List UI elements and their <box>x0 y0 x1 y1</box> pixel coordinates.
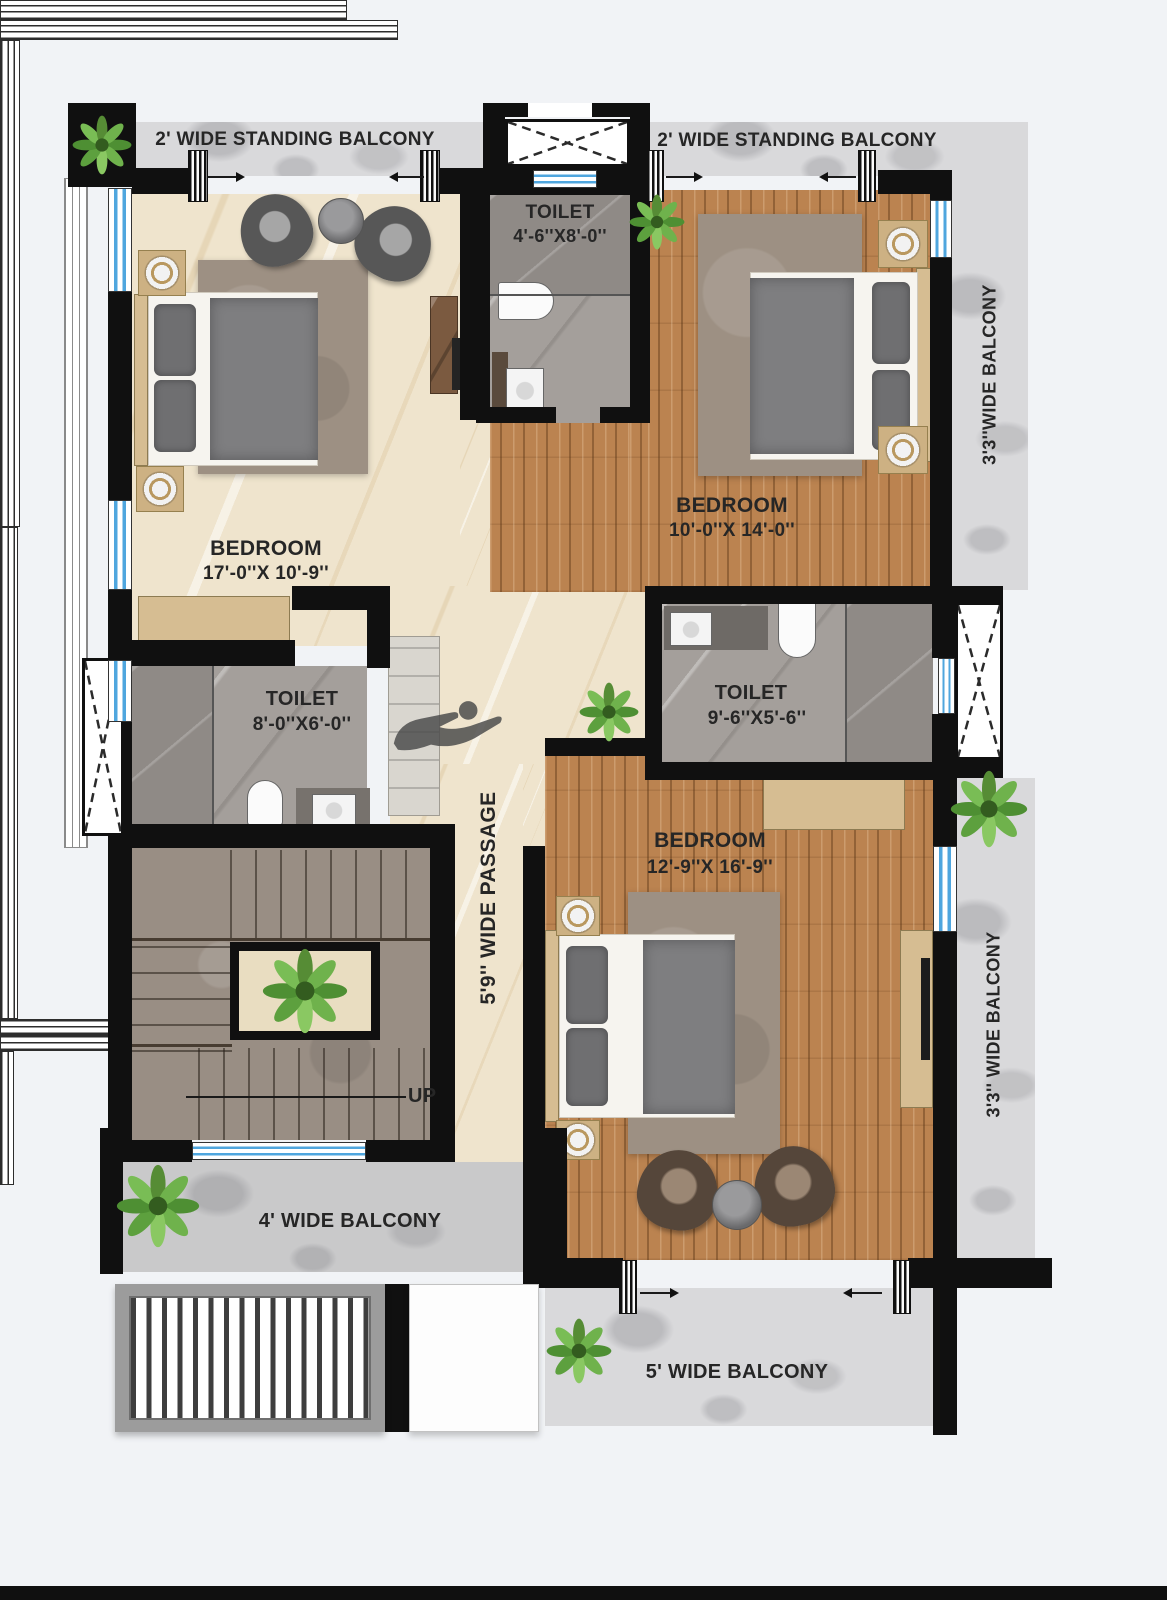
room-dims: 4'-6''X8'-0'' <box>480 226 640 247</box>
nightstand <box>138 250 186 296</box>
pillow <box>566 1028 608 1106</box>
sliding-door-leaf <box>858 150 876 202</box>
up-leader-line <box>186 1096 406 1098</box>
sliding-door-leaf <box>619 1260 637 1314</box>
shower-divider <box>845 604 847 764</box>
pillow <box>872 282 910 364</box>
floor-plan: 2' WIDE STANDING BALCONY 2' WIDE STANDIN… <box>0 0 1167 1600</box>
wall <box>483 103 528 117</box>
wall <box>108 292 132 500</box>
sink <box>670 612 712 646</box>
door-swing-arrow <box>236 172 245 182</box>
door-swing-arrow <box>208 176 236 178</box>
toilet-fixture <box>498 282 554 320</box>
bed-duvet <box>643 940 735 1114</box>
railing <box>0 527 18 1019</box>
window <box>108 500 132 590</box>
door-swing-arrow <box>398 176 424 178</box>
toilet-left-shower <box>132 666 212 824</box>
room-name: TOILET <box>222 688 382 711</box>
balcony-label: 3'3'' WIDE BALCONY <box>984 875 1005 1175</box>
bottom-border <box>0 1586 1167 1600</box>
pillow <box>154 304 196 376</box>
railing <box>0 20 398 40</box>
wall <box>645 586 955 604</box>
window <box>108 188 132 292</box>
potted-plant-icon <box>116 1150 200 1262</box>
wall <box>930 258 952 590</box>
wall <box>108 824 455 848</box>
door-swing-arrow <box>852 1292 882 1294</box>
passage-floor <box>460 420 490 598</box>
sliding-door-leaf <box>893 1260 911 1314</box>
window <box>533 170 597 188</box>
coffee-table <box>318 198 364 244</box>
window <box>930 200 952 258</box>
balcony-label: 5' WIDE BALCONY <box>617 1361 857 1384</box>
wall <box>367 586 390 668</box>
sink <box>506 368 544 412</box>
door-swing-arrow <box>819 172 828 182</box>
stair-flight <box>198 1048 430 1140</box>
wall <box>108 848 132 1142</box>
potted-plant-icon <box>578 682 640 742</box>
room-name: TOILET <box>480 202 640 224</box>
pillow <box>566 946 608 1024</box>
balcony-label: 4' WIDE BALCONY <box>250 1210 450 1233</box>
stair-flight <box>132 942 232 1052</box>
window <box>192 1142 366 1160</box>
bed-headboard <box>545 930 559 1122</box>
potted-plant-icon <box>546 1280 612 1422</box>
window <box>933 846 957 932</box>
balcony-label: 2' WIDE STANDING BALCONY <box>145 129 445 151</box>
sink <box>312 794 356 826</box>
door-swing-arrow <box>666 176 694 178</box>
nightstand <box>556 896 600 936</box>
wall <box>933 932 957 1262</box>
door-swing-arrow <box>828 176 856 178</box>
nightstand <box>878 426 928 474</box>
sliding-door-leaf <box>188 150 208 202</box>
bed-headboard <box>134 294 148 466</box>
railing <box>0 1051 14 1185</box>
toilet-fixture <box>778 600 816 658</box>
lift-opening <box>528 103 592 117</box>
wall <box>933 1223 957 1435</box>
louver-grille <box>129 1296 371 1420</box>
passage-label: 5'9'' WIDE PASSAGE <box>477 748 501 1048</box>
room-dims: 17'-0''X 10'-9'' <box>166 563 366 585</box>
wall <box>366 1140 455 1162</box>
room-dims: 12'-9''X 16'-9'' <box>610 857 810 879</box>
wall <box>132 168 188 194</box>
tv-icon <box>452 338 460 390</box>
railing <box>0 40 20 527</box>
wall <box>592 103 650 117</box>
room-name: BEDROOM <box>632 494 832 518</box>
wardrobe <box>138 596 290 646</box>
door-swing-arrow <box>389 172 398 182</box>
potted-plant-icon <box>72 107 132 183</box>
wall <box>385 1284 409 1432</box>
wall <box>600 407 648 423</box>
nightstand <box>878 220 928 268</box>
door-swing-arrow <box>640 1292 670 1294</box>
duct-shaft <box>505 119 630 167</box>
stair-edge <box>132 1044 232 1047</box>
room-name: BEDROOM <box>610 829 810 853</box>
wardrobe <box>763 778 905 830</box>
coffee-table <box>712 1180 762 1230</box>
stair-flight <box>230 850 430 940</box>
room-name: TOILET <box>671 682 831 705</box>
stair-edge <box>132 938 430 941</box>
wall <box>523 1128 567 1262</box>
wall <box>908 1258 1052 1288</box>
wall <box>645 762 955 780</box>
balcony-label: 2' WIDE STANDING BALCONY <box>647 130 947 152</box>
potted-plant-icon <box>946 770 1032 848</box>
wall <box>476 407 556 423</box>
balcony-label: 3'3''WIDE BALCONY <box>980 225 1001 525</box>
shower-divider <box>212 666 214 824</box>
shower-divider <box>490 294 630 296</box>
bed-duvet <box>750 278 854 454</box>
wall <box>932 586 955 658</box>
open-terrace <box>409 1284 539 1432</box>
wall <box>878 170 952 194</box>
passage-floor <box>523 764 545 846</box>
nightstand <box>136 466 184 512</box>
room-dims: 9'-6''X5'-6'' <box>677 708 837 730</box>
wall <box>645 604 662 780</box>
door-swing-arrow <box>694 172 703 182</box>
window <box>938 658 955 714</box>
wall <box>108 640 295 666</box>
tv-icon <box>921 958 930 1060</box>
room-dims: 8'-0''X6'-0'' <box>222 714 382 736</box>
duct-shaft <box>955 602 1003 760</box>
window <box>108 660 132 722</box>
potted-plant-icon <box>255 948 355 1034</box>
room-dims: 10'-0''X 14'-0'' <box>632 520 832 542</box>
pillow <box>154 380 196 452</box>
room-name: BEDROOM <box>166 537 366 561</box>
wall <box>955 586 1003 602</box>
stairs-up-label: UP <box>408 1085 454 1108</box>
toilet-fixture <box>247 780 283 826</box>
door-swing-arrow <box>670 1288 679 1298</box>
railing <box>0 0 347 20</box>
toilet-right-shower <box>845 604 933 764</box>
bedroom-right-floor <box>490 420 648 592</box>
bed-duvet <box>210 298 318 460</box>
door-swing-arrow <box>843 1288 852 1298</box>
